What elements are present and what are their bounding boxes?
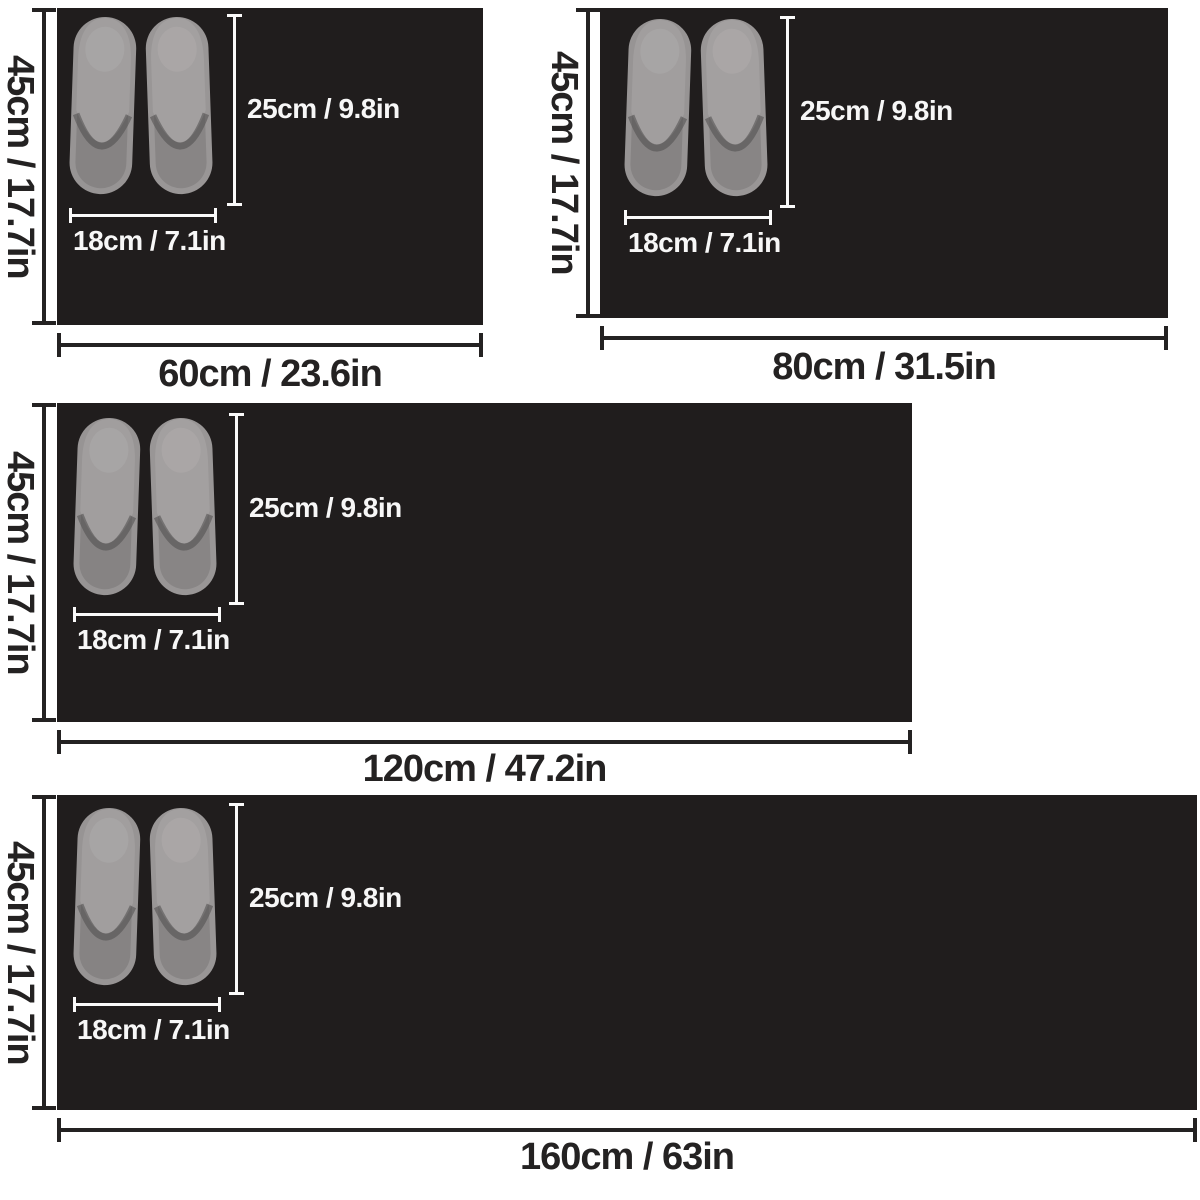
mat-height-label: 45cm / 17.7in: [0, 8, 40, 325]
mat-height-label: 45cm / 17.7in: [544, 8, 584, 318]
dimension-end-cap: [624, 210, 627, 225]
dimension-end-cap: [32, 321, 56, 325]
dimension-line-bar: [42, 12, 46, 321]
mat-width-dimension-line: [57, 1118, 1197, 1142]
dimension-end-cap: [479, 333, 483, 357]
slipper-width-label: 18cm / 7.1in: [73, 224, 226, 258]
mat-height-label: 45cm / 17.7in: [0, 403, 40, 722]
dimension-end-cap: [1193, 1118, 1197, 1142]
dimension-end-cap: [229, 803, 244, 806]
dimension-end-cap: [214, 208, 217, 223]
panel-120cm: 45cm / 17.7in 25cm / 9.8in 18cm / 7.1in …: [0, 0, 1200, 1200]
mat-width-label: 160cm / 63in: [57, 1136, 1197, 1179]
mat-60cm: 25cm / 9.8in 18cm / 7.1in: [57, 8, 483, 325]
dimension-line-bar: [235, 806, 238, 992]
dimension-end-cap: [576, 8, 600, 12]
slipper-length-dimension-line: [780, 16, 795, 208]
mat-height-label: 45cm / 17.7in: [0, 795, 40, 1110]
slipper-length-label: 25cm / 9.8in: [249, 881, 402, 915]
dimension-end-cap: [229, 413, 244, 416]
dimension-line-bar: [61, 740, 908, 744]
panel-60cm: 45cm / 17.7in 25cm / 9.8in 18cm / 7.1in …: [0, 0, 1200, 1200]
mat-height-dimension-line: [32, 795, 56, 1110]
dimension-line-bar: [233, 17, 236, 203]
dimension-end-cap: [576, 314, 600, 318]
panel-80cm: 45cm / 17.7in 25cm / 9.8in 18cm / 7.1in …: [0, 0, 1200, 1200]
mat-120cm: 25cm / 9.8in 18cm / 7.1in: [57, 403, 912, 722]
slipper-width-label: 18cm / 7.1in: [77, 1013, 230, 1047]
dimension-line-bar: [72, 214, 214, 217]
dimension-line-bar: [61, 343, 479, 347]
dimension-end-cap: [600, 326, 604, 350]
dimension-end-cap: [1164, 326, 1168, 350]
slipper-width-label: 18cm / 7.1in: [628, 226, 781, 260]
mat-height-dimension-line: [32, 403, 56, 722]
dimension-end-cap: [73, 607, 76, 622]
mat-height-dimension-line: [576, 8, 600, 318]
mat-160cm: 25cm / 9.8in 18cm / 7.1in: [57, 795, 1197, 1110]
dimension-end-cap: [218, 607, 221, 622]
slipper-length-dimension-line: [229, 803, 244, 995]
mat-width-label: 80cm / 31.5in: [600, 346, 1168, 389]
mat-width-label: 120cm / 47.2in: [57, 748, 912, 791]
slipper-width-label: 18cm / 7.1in: [77, 623, 230, 657]
dimension-end-cap: [57, 1118, 61, 1142]
panel-160cm: 45cm / 17.7in 25cm / 9.8in 18cm / 7.1in …: [0, 0, 1200, 1200]
mat-width-dimension-line: [57, 333, 483, 357]
dimension-end-cap: [227, 14, 242, 17]
slippers-icon: [67, 14, 215, 200]
dimension-end-cap: [32, 403, 56, 407]
slipper-width-dimension-line: [624, 210, 772, 225]
dimension-end-cap: [218, 997, 221, 1012]
dimension-line-bar: [586, 12, 590, 314]
slipper-length-label: 25cm / 9.8in: [800, 94, 953, 128]
slipper-length-dimension-line: [227, 14, 242, 206]
dimension-end-cap: [227, 203, 242, 206]
dimension-end-cap: [57, 730, 61, 754]
slippers-icon: [622, 16, 770, 202]
slipper-length-label: 25cm / 9.8in: [247, 92, 400, 126]
slipper-length-dimension-line: [229, 413, 244, 605]
slippers-icon: [71, 415, 219, 601]
dimension-end-cap: [229, 992, 244, 995]
dimension-line-bar: [604, 336, 1164, 340]
slipper-width-dimension-line: [73, 607, 221, 622]
mat-80cm: 25cm / 9.8in 18cm / 7.1in: [600, 8, 1168, 318]
dimension-line-bar: [76, 613, 218, 616]
dimension-line-bar: [786, 19, 789, 205]
dimension-end-cap: [32, 795, 56, 799]
dimension-end-cap: [908, 730, 912, 754]
dimension-line-bar: [61, 1128, 1193, 1132]
mat-height-dimension-line: [32, 8, 56, 325]
dimension-line-bar: [42, 407, 46, 718]
dimension-line-bar: [627, 216, 769, 219]
dimension-line-bar: [235, 416, 238, 602]
dimension-end-cap: [73, 997, 76, 1012]
dimension-end-cap: [57, 333, 61, 357]
slipper-width-dimension-line: [69, 208, 217, 223]
slippers-icon: [71, 805, 219, 991]
dimension-end-cap: [69, 208, 72, 223]
dimension-end-cap: [229, 602, 244, 605]
slipper-length-label: 25cm / 9.8in: [249, 491, 402, 525]
dimension-end-cap: [780, 16, 795, 19]
dimension-line-bar: [42, 799, 46, 1106]
dimension-end-cap: [32, 718, 56, 722]
mat-width-label: 60cm / 23.6in: [57, 353, 483, 396]
dimension-line-bar: [76, 1003, 218, 1006]
mat-width-dimension-line: [57, 730, 912, 754]
dimension-end-cap: [769, 210, 772, 225]
dimension-end-cap: [32, 8, 56, 12]
mat-width-dimension-line: [600, 326, 1168, 350]
slipper-width-dimension-line: [73, 997, 221, 1012]
dimension-end-cap: [32, 1106, 56, 1110]
dimension-end-cap: [780, 205, 795, 208]
size-chart-image: 45cm / 17.7in 25cm / 9.8in 18cm / 7.1in …: [0, 0, 1200, 1200]
